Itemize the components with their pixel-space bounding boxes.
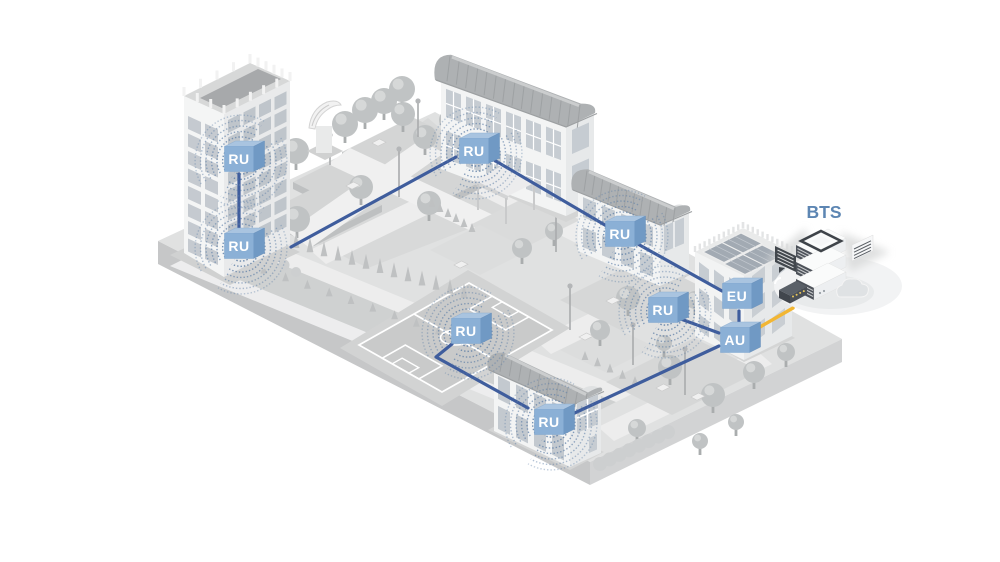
svg-text:RU: RU bbox=[652, 302, 673, 318]
svg-text:RU: RU bbox=[609, 226, 630, 242]
svg-text:RU: RU bbox=[455, 323, 476, 339]
svg-text:RU: RU bbox=[228, 151, 249, 167]
svg-text:AU: AU bbox=[724, 332, 745, 348]
svg-text:RU: RU bbox=[538, 414, 559, 430]
svg-text:RU: RU bbox=[228, 238, 249, 254]
svg-text:RU: RU bbox=[463, 143, 484, 159]
svg-text:EU: EU bbox=[727, 288, 747, 304]
svg-text:BTS: BTS bbox=[807, 202, 842, 222]
